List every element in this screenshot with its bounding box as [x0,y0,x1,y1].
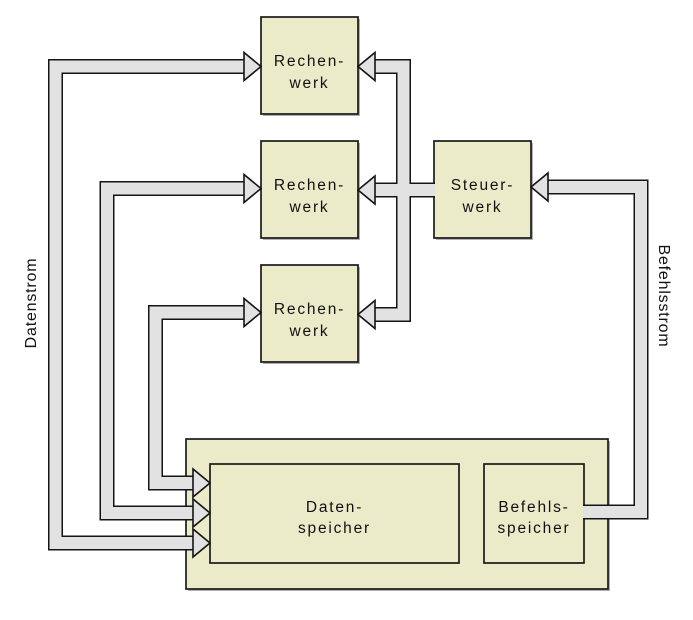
rechenwerk-3-label-line1: Rechen- [274,301,345,318]
diagram-canvas: Rechen- werk Rechen- werk Rechen- werk S… [0,0,693,620]
befehlsspeicher-label-line2: speicher [498,520,571,537]
rechenwerk-2-label-line2: werk [289,199,330,216]
arrowhead-control-rechenwerk-3-icon [358,301,375,329]
datenstrom-label: Datenstrom [23,258,40,349]
arrowhead-into-rechenwerk-1-icon [244,53,261,81]
arrowhead-into-rechenwerk-3-icon [244,299,261,327]
arrowhead-into-steuerwerk-icon [531,173,548,201]
befehlsspeicher-label-line1: Befehls- [498,499,569,516]
datenspeicher-label-line2: speicher [298,520,371,537]
steuerwerk-label-line2: werk [462,199,503,216]
arrowhead-into-rechenwerk-2-icon [244,175,261,203]
arrowhead-control-rechenwerk-2-icon [358,176,375,204]
arrowhead-control-rechenwerk-1-icon [358,53,375,81]
rechenwerk-1-label-line1: Rechen- [274,53,345,70]
architecture-diagram: Rechen- werk Rechen- werk Rechen- werk S… [0,0,693,620]
befehlsstrom-label: Befehlsstrom [655,245,672,348]
steuerwerk-label-line1: Steuer- [451,177,514,194]
datenspeicher-label-line1: Daten- [306,499,363,516]
rechenwerk-2-label-line1: Rechen- [274,177,345,194]
rechenwerk-3-label-line2: werk [289,323,330,340]
rechenwerk-1-label-line2: werk [289,75,330,92]
